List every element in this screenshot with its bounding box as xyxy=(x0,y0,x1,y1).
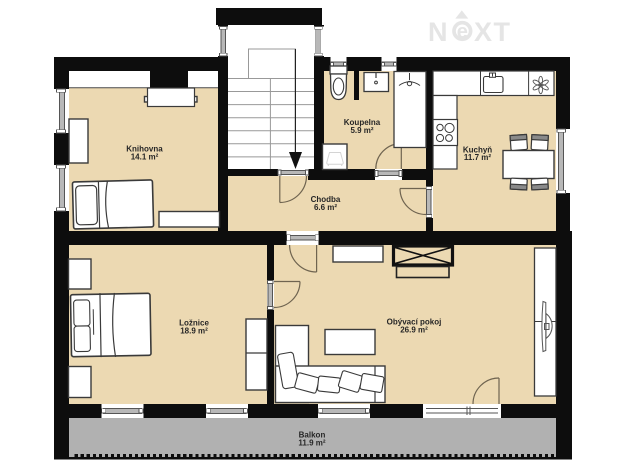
svg-text:N: N xyxy=(428,17,448,47)
svg-text:5.9 m²: 5.9 m² xyxy=(350,126,373,135)
svg-text:6.6 m²: 6.6 m² xyxy=(314,203,337,212)
svg-text:14.1 m²: 14.1 m² xyxy=(131,153,159,162)
svg-text:26.9 m²: 26.9 m² xyxy=(400,325,428,334)
svg-text:11.9 m²: 11.9 m² xyxy=(298,439,325,448)
svg-text:18.9 m²: 18.9 m² xyxy=(180,327,208,336)
svg-text:XT: XT xyxy=(474,17,512,47)
svg-text:11.7 m²: 11.7 m² xyxy=(464,153,491,162)
svg-text:e: e xyxy=(457,21,468,43)
